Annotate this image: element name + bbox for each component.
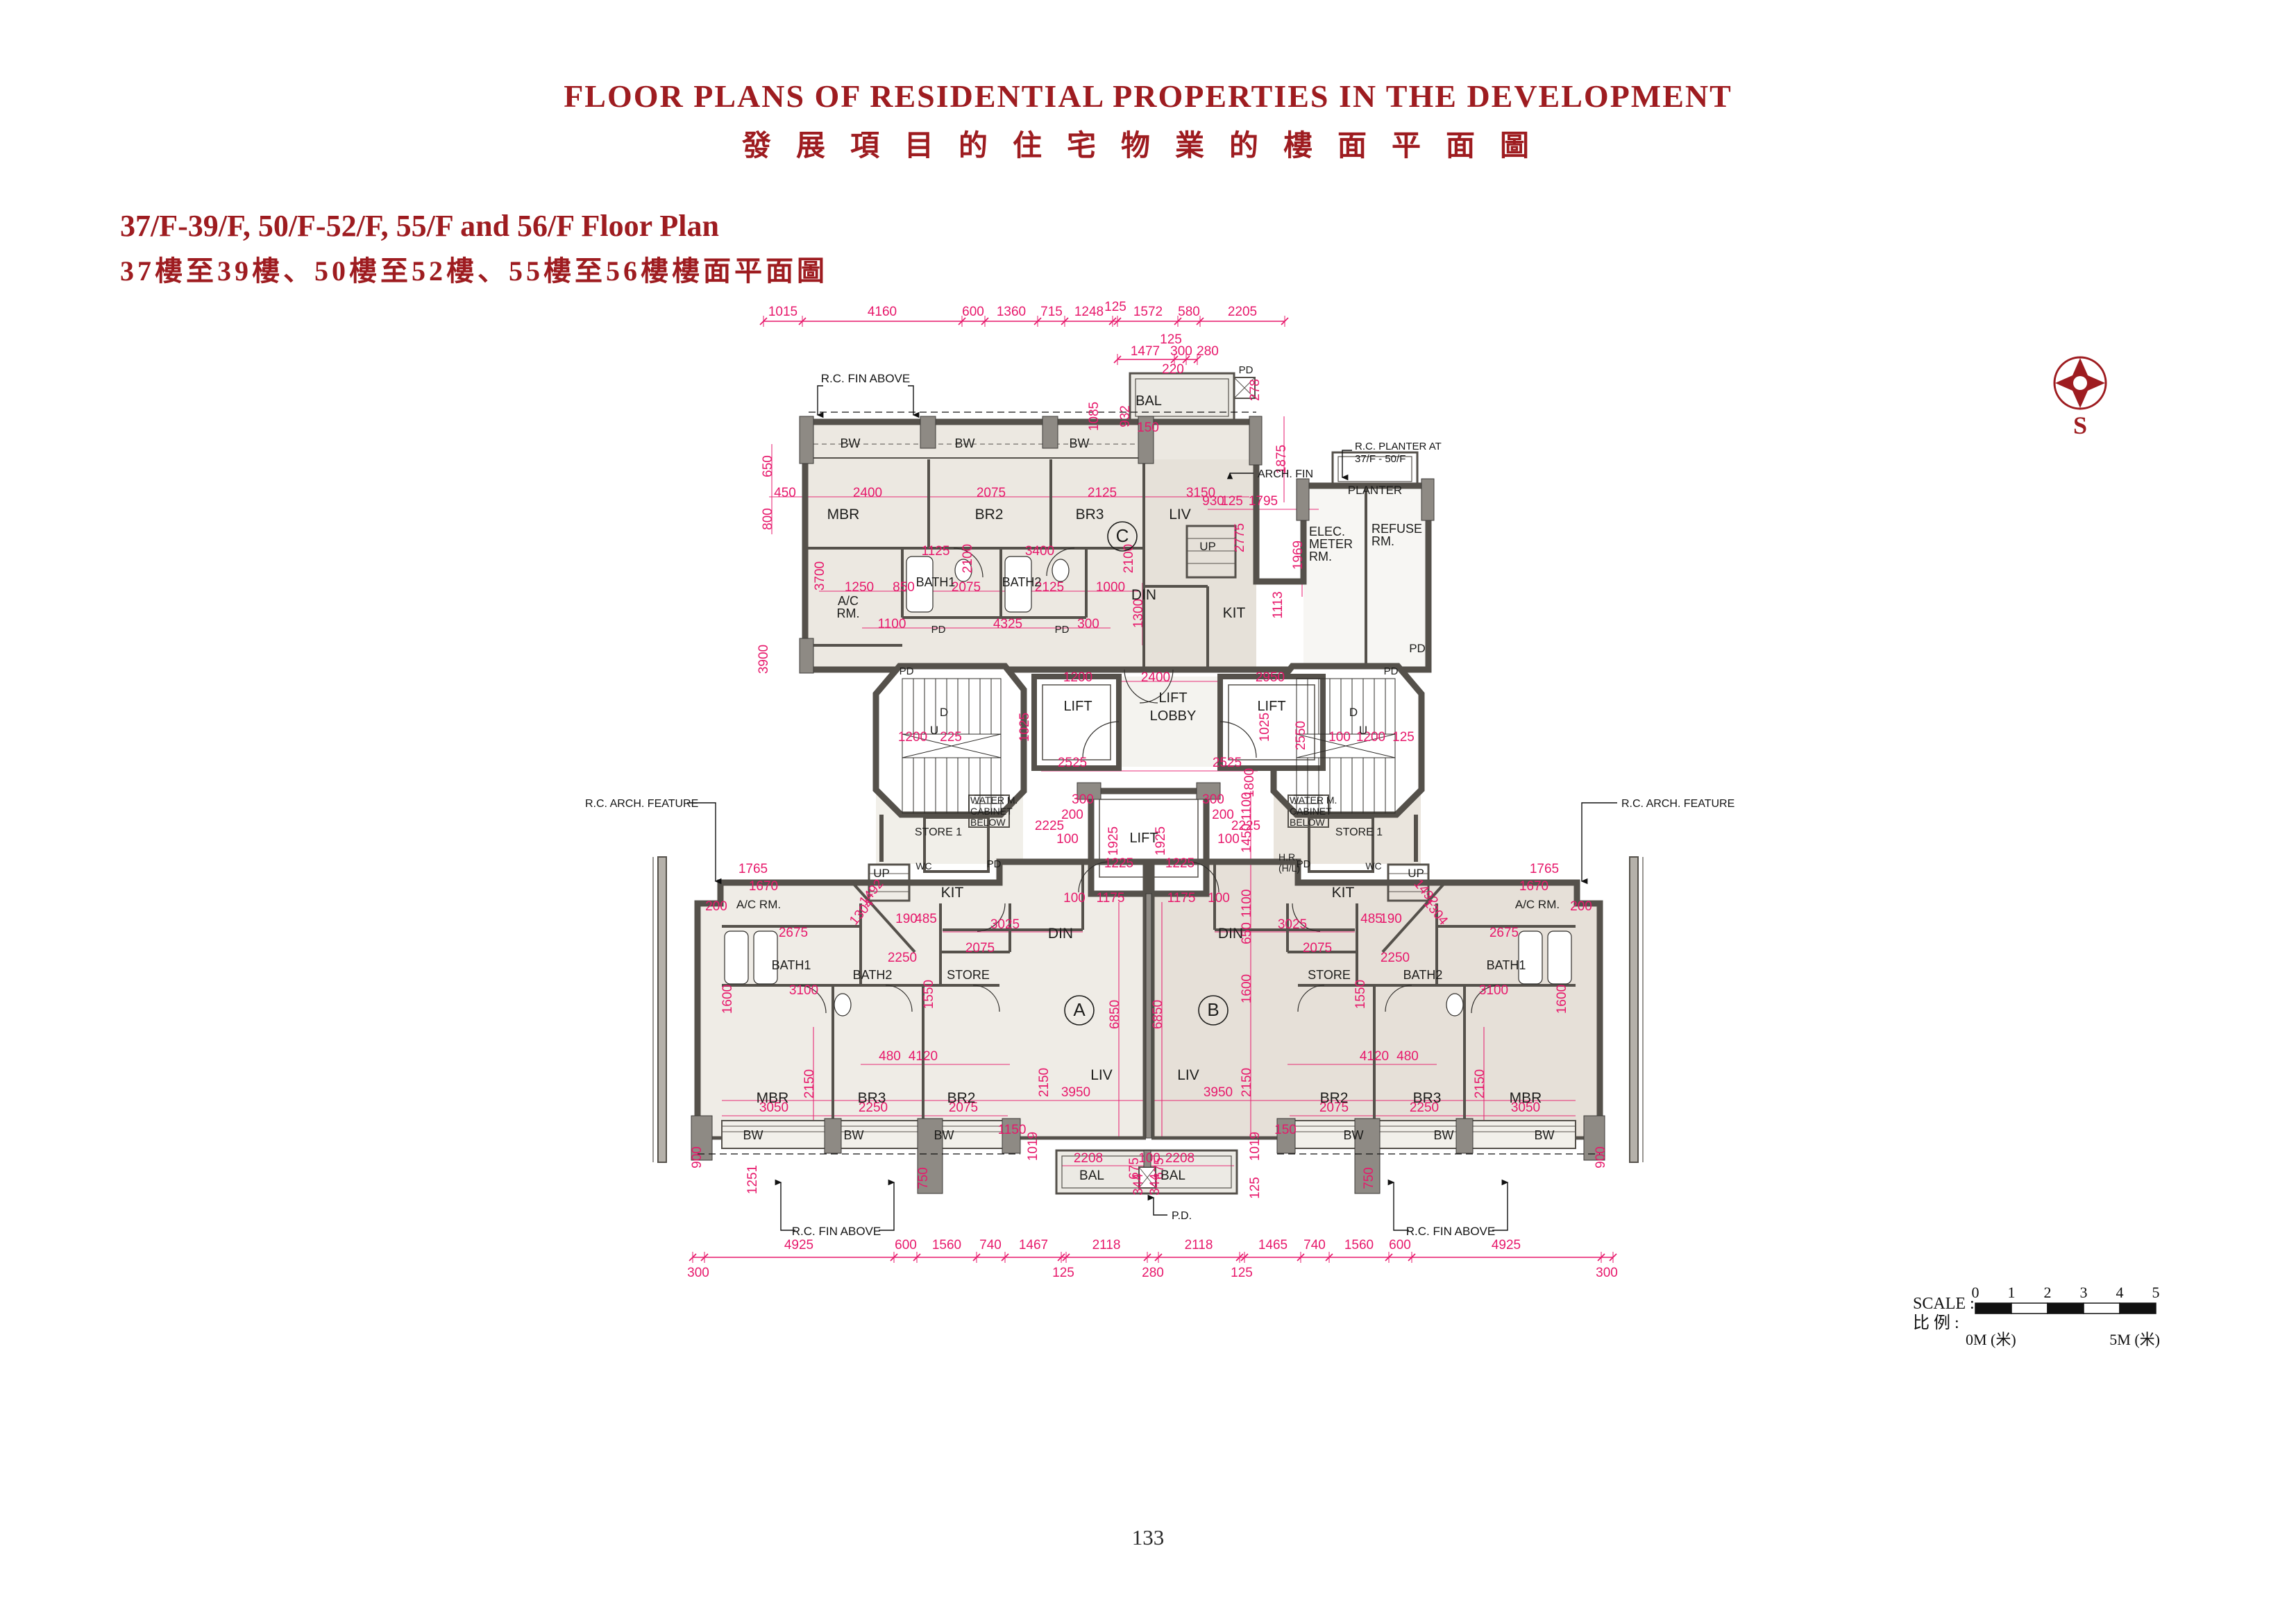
room-label-br2: BR2 [947, 1090, 976, 1106]
dim-label: 3025 [1278, 917, 1307, 932]
scale-tick-label: 5 [2152, 1284, 2160, 1301]
dim-label: 750 [1362, 1167, 1376, 1189]
room-label-kit: KIT [941, 885, 964, 901]
dim-label: 1560 [1344, 1238, 1374, 1252]
room-label-planter: PLANTER [1348, 484, 1402, 497]
room-label-u: U [1359, 724, 1367, 737]
dim-label: 2150 [1473, 1069, 1487, 1098]
room-label-kit: KIT [1332, 885, 1355, 901]
room-label-lift: LIFT [1257, 699, 1285, 714]
room-label-mbr: MBR [827, 507, 860, 522]
dim-label: 650 [761, 455, 775, 477]
scale-label-en: SCALE : [1913, 1295, 1975, 1313]
room-label-bath1: BATH1 [772, 958, 811, 972]
dim-label: 125 [1052, 1266, 1074, 1280]
dim-label: 200 [1570, 899, 1592, 914]
room-label-br2: BR2 [975, 507, 1004, 522]
dim-label: 1085 [1087, 402, 1101, 431]
room-label-bw: BW [934, 1128, 954, 1142]
room-label-pd: PD [987, 858, 1002, 870]
dim-label: 2950 [1256, 670, 1285, 685]
dim-label: 2675 [779, 926, 808, 940]
dim-label: 1100 [878, 617, 906, 631]
dim-label: 740 [1303, 1238, 1326, 1252]
dim-label: 3900 [757, 645, 771, 674]
dim-label: 1100 [1240, 890, 1254, 918]
room-label-lift: LIFT [1063, 699, 1092, 714]
room-label-mbr: MBR [757, 1090, 789, 1106]
dim-label: 485 [915, 912, 937, 926]
page-number: 133 [0, 1525, 2296, 1550]
room-label-d: D [940, 706, 948, 719]
room-label-liv: LIV [1169, 507, 1191, 522]
dim-label: 300 [1596, 1266, 1618, 1280]
room-label-cabinet: CABINET [1290, 806, 1332, 817]
dim-label: 1765 [1530, 862, 1559, 876]
room-label-rm: RM. [1309, 550, 1332, 563]
dim-label: 1600 [1240, 974, 1254, 1003]
room-label-bath2: BATH2 [1002, 575, 1042, 589]
dim-label: 1467 [1019, 1238, 1048, 1252]
dim-label: 2150 [1037, 1068, 1052, 1097]
dim-label: 900 [690, 1146, 704, 1169]
dim-label: 4160 [868, 305, 897, 319]
dim-label: 1175 [1167, 891, 1196, 906]
room-label-a-c-rm: A/C RM. [736, 898, 781, 911]
dim-label: 850 [893, 580, 915, 595]
room-label-pd: PD [1055, 624, 1070, 636]
dim-label: 1000 [1096, 580, 1125, 595]
room-label-bw: BW [844, 1128, 864, 1142]
dim-label: 190 [895, 912, 918, 926]
room-label-up: UP [1199, 540, 1216, 553]
room-label-bal: BAL [1079, 1169, 1104, 1183]
dim-label: 1113 [1271, 591, 1285, 618]
dim-label: 4120 [1360, 1049, 1389, 1064]
room-label-bw: BW [1344, 1128, 1364, 1142]
dim-label: 3700 [813, 561, 827, 590]
dim-label: 1175 [1097, 891, 1125, 906]
scale-tick-label: 1 [2008, 1284, 2016, 1301]
dim-label: 300 [1170, 344, 1192, 359]
dim-label: 1225 [1104, 856, 1133, 871]
annotation-r-c-fin-above: R.C. FIN ABOVE [821, 372, 910, 385]
dim-label: 4325 [993, 617, 1022, 631]
dim-label: 220 [1162, 362, 1184, 377]
room-label-br3: BR3 [1413, 1090, 1442, 1106]
annotation-r-c-fin-above: R.C. FIN ABOVE [1406, 1225, 1495, 1238]
room-label-bal: BAL [1160, 1169, 1185, 1183]
dim-label: 4120 [909, 1049, 938, 1064]
room-label-pd: PD [1297, 858, 1311, 870]
compass-south-label: S [2073, 411, 2087, 439]
room-label-bw: BW [1070, 436, 1090, 450]
room-label-pd: PD [900, 665, 914, 677]
dim-label: 2150 [1240, 1068, 1254, 1097]
dim-label: 300 [1077, 617, 1099, 631]
scale-label-cn: 比 例 : [1913, 1314, 1959, 1332]
dim-label: 1969 [1291, 541, 1306, 570]
dim-label: 2775 [1233, 523, 1247, 552]
dim-label: 600 [895, 1238, 917, 1252]
dim-label: 600 [1389, 1238, 1411, 1252]
scale-right-label: 5M (米) [2109, 1331, 2160, 1348]
room-label-rm: RM. [837, 606, 860, 620]
room-label-store-1: STORE 1 [915, 826, 962, 838]
room-label-d: D [1349, 706, 1358, 719]
annotation-p-d: P.D. [1172, 1210, 1192, 1222]
dim-label: 1200 [1063, 670, 1092, 685]
dim-label: 300 [1072, 792, 1094, 807]
dim-label: 100 [1056, 832, 1079, 847]
dim-label: 3100 [789, 983, 818, 998]
room-label-lobby: LOBBY [1150, 708, 1197, 724]
scale-bar-segment [1975, 1303, 2011, 1314]
room-label-cabinet: CABINET [970, 806, 1013, 817]
room-label-refuse: REFUSE [1371, 522, 1422, 536]
scale-tick-label: 3 [2080, 1284, 2088, 1301]
room-label-store: STORE [1308, 968, 1351, 982]
dim-label: 1477 [1131, 344, 1160, 359]
dim-label: 1670 [1519, 879, 1548, 894]
dim-label: 2150 [802, 1069, 817, 1098]
dim-label: 2225 [1035, 819, 1064, 833]
dim-label: 2550 [1294, 721, 1308, 750]
dim-label: 800 [761, 508, 775, 530]
room-label-bath2: BATH2 [1403, 968, 1443, 982]
dim-label: 1560 [932, 1238, 961, 1252]
dim-label: 6850 [1151, 1000, 1165, 1029]
dim-label: 2250 [1381, 951, 1410, 965]
dim-label: 2100 [961, 544, 975, 573]
dim-label: 1248 [1074, 305, 1104, 319]
dim-label: 4925 [1492, 1238, 1521, 1252]
room-label-pd: PD [1239, 364, 1253, 376]
dim-label: 190 [1380, 912, 1402, 926]
dim-label: 3400 [1025, 544, 1054, 559]
dim-label: 1572 [1133, 305, 1163, 319]
dim-label: 280 [1142, 1266, 1164, 1280]
dim-label: 1550 [922, 980, 936, 1009]
dim-label: 100 [1328, 730, 1351, 745]
dim-label: 1025 [1018, 713, 1032, 742]
dim-label: 750 [916, 1167, 931, 1189]
room-label-liv: LIV [1090, 1067, 1113, 1083]
dim-label: 1550 [1353, 980, 1368, 1009]
dim-label: 1670 [749, 879, 778, 894]
room-label-bath1: BATH1 [916, 575, 956, 589]
dim-label: 2075 [952, 580, 981, 595]
dim-label: 2100 [1122, 544, 1136, 573]
room-label-wc: WC [915, 860, 931, 872]
dim-label: 4925 [784, 1238, 813, 1252]
dim-label: 932 [1118, 405, 1133, 427]
dim-label: 1019 [1026, 1132, 1040, 1161]
dim-label: 1765 [738, 862, 768, 876]
annotation-arch-fin: ARCH. FIN [1258, 468, 1313, 480]
dim-label: 300 [687, 1266, 709, 1280]
annotation-r-c-fin-above: R.C. FIN ABOVE [792, 1225, 881, 1238]
dim-label: 485 [1360, 912, 1383, 926]
dim-label: 100 [1217, 832, 1240, 847]
room-label-br3: BR3 [1076, 507, 1104, 522]
dim-label: 100 [1063, 891, 1086, 906]
dim-label: 1925 [1106, 826, 1121, 856]
room-label-meter: METER [1309, 537, 1353, 551]
dim-label: 2118 [1092, 1238, 1121, 1252]
unit-label-c: C [1116, 525, 1129, 546]
scale-tick-label: 4 [2116, 1284, 2124, 1301]
annotation-r-c-planter-at: R.C. PLANTER AT [1355, 441, 1442, 452]
dim-label: 2205 [1228, 305, 1257, 319]
room-label-store: STORE [947, 968, 990, 982]
room-label-water-m: WATER M. [1290, 794, 1337, 806]
dim-label: 480 [879, 1049, 901, 1064]
dim-label: 1600 [720, 985, 735, 1014]
annotation-37-f-50-f: 37/F - 50/F [1355, 453, 1406, 465]
dim-label: 1100 [1240, 792, 1254, 821]
dim-label: 740 [979, 1238, 1002, 1252]
dim-label: 580 [1178, 305, 1200, 319]
dim-label: 1125 [922, 544, 950, 559]
dim-label: 2250 [888, 951, 917, 965]
dim-label: 1360 [997, 305, 1026, 319]
dim-label: 1795 [1249, 494, 1278, 509]
dim-label: 1200 [898, 730, 927, 745]
room-label-up: UP [1408, 867, 1424, 880]
dim-label: 715 [1040, 305, 1063, 319]
dim-label: 1450 [1240, 824, 1254, 853]
scale-bar-segment [2011, 1303, 2048, 1314]
room-label-wc: WC [1365, 860, 1381, 872]
room-label-bw: BW [841, 436, 861, 450]
unit-label-b: B [1207, 999, 1219, 1020]
room-label-bw: BW [743, 1128, 763, 1142]
brochure-page: FLOOR PLANS OF RESIDENTIAL PROPERTIES IN… [0, 0, 2296, 1623]
dim-label: 280 [1197, 344, 1219, 359]
scale-bar-segment [2120, 1303, 2156, 1314]
dim-label: 125 [1221, 494, 1243, 509]
dim-label: 225 [940, 730, 962, 745]
scale-bar-segment [2048, 1303, 2084, 1314]
room-label-h-r: H.R. [1278, 851, 1298, 863]
room-label-a-c: A/C [838, 594, 859, 608]
dim-label: 125 [1248, 1177, 1263, 1199]
dim-label: 1300 [1131, 599, 1146, 628]
dim-label: 6850 [1108, 1000, 1122, 1029]
dim-label: 450 [774, 486, 796, 500]
dim-label: 3025 [990, 917, 1020, 932]
dim-label: 2208 [1074, 1151, 1103, 1166]
dim-label: 2075 [977, 486, 1006, 500]
room-label-din: DIN [1048, 926, 1073, 942]
dim-label: 1600 [1555, 985, 1569, 1014]
compass: S [2054, 357, 2106, 439]
room-label-liv: LIV [1177, 1067, 1199, 1083]
room-label-store-1: STORE 1 [1335, 826, 1383, 838]
unit-label-a: A [1073, 999, 1086, 1020]
scale-bar-segment [2084, 1303, 2120, 1314]
dim-label: 600 [962, 305, 984, 319]
room-label-pd: PD [1409, 642, 1426, 655]
room-label-kit: KIT [1223, 605, 1246, 621]
dim-label: 125 [1231, 1266, 1253, 1280]
room-label-below: BELOW [1290, 817, 1325, 828]
dim-label: 2125 [1088, 486, 1117, 500]
dim-label: 200 [705, 899, 727, 914]
dim-label: 2400 [1141, 670, 1170, 685]
dim-label: 3950 [1204, 1085, 1233, 1100]
room-label-din: DIN [1218, 926, 1243, 942]
dim-label: 344 [1131, 1173, 1146, 1196]
floor-plan-drawing: 1015416060013607151248125157258022051251… [0, 0, 2296, 1623]
room-label-bw: BW [955, 436, 975, 450]
dim-label: 1015 [768, 305, 797, 319]
dim-label: 900 [1594, 1146, 1608, 1169]
dim-label: 278 [1248, 379, 1263, 401]
scale-tick-label: 0 [1972, 1284, 1980, 1301]
room-label-pd: PD [1384, 665, 1399, 677]
dim-label: 100 [1208, 891, 1230, 906]
dim-label: 1150 [998, 1123, 1027, 1137]
dim-label: 150 [1137, 420, 1159, 435]
dim-label: 2675 [1489, 926, 1519, 940]
room-label-din: DIN [1131, 587, 1156, 603]
room-label-below: BELOW [970, 817, 1006, 828]
dim-label: 150 [1274, 1123, 1297, 1137]
room-label-elec: ELEC. [1309, 525, 1345, 538]
scale-tick-label: 2 [2044, 1284, 2052, 1301]
annotation-r-c-arch-feature: R.C. ARCH. FEATURE [1621, 798, 1734, 810]
room-label-rm: RM. [1371, 534, 1394, 548]
room-label-br3: BR3 [858, 1090, 886, 1106]
dim-label: 2208 [1165, 1151, 1195, 1166]
room-label-bw: BW [1535, 1128, 1555, 1142]
dim-label: 3100 [1479, 983, 1508, 998]
dim-label: 1019 [1248, 1132, 1263, 1161]
room-label-lift: LIFT [1129, 831, 1158, 846]
dim-label: 1465 [1258, 1238, 1288, 1252]
dim-label: 2075 [1303, 941, 1332, 955]
room-label-bath2: BATH2 [853, 968, 893, 982]
room-label-bath1: BATH1 [1487, 958, 1526, 972]
room-label-mbr: MBR [1510, 1090, 1542, 1106]
dim-label: 200 [1061, 808, 1083, 822]
dim-label: 1225 [1165, 856, 1195, 871]
room-label-br2: BR2 [1320, 1090, 1349, 1106]
room-label-up: UP [873, 867, 890, 880]
dim-label: 2525 [1058, 756, 1087, 770]
dim-label: 1025 [1258, 713, 1272, 742]
dim-label: 125 [1392, 730, 1415, 745]
room-label-bw: BW [1434, 1128, 1454, 1142]
room-label-a-c-rm: A/C RM. [1515, 898, 1560, 911]
room-label-bal: BAL [1136, 393, 1162, 409]
room-label-pd: PD [931, 624, 946, 636]
scale-bar: SCALE : 比 例 : 012345 0M (米) 5M (米) [1913, 1284, 2160, 1348]
dim-label: 300 [1202, 792, 1224, 807]
scale-left-label: 0M (米) [1966, 1331, 2016, 1348]
dim-label: 2118 [1185, 1238, 1213, 1252]
room-label-u: U [930, 724, 938, 737]
dim-label: 480 [1396, 1049, 1419, 1064]
dim-label: 2075 [965, 941, 995, 955]
room-label-water-m: WATER M. [970, 794, 1018, 806]
dim-label: 125 [1104, 300, 1126, 314]
annotation-r-c-arch-feature: R.C. ARCH. FEATURE [585, 798, 698, 810]
dim-label: 2525 [1213, 756, 1242, 770]
dim-label: 1251 [745, 1165, 760, 1194]
dim-label: 3950 [1061, 1085, 1090, 1100]
dim-label: 1250 [845, 580, 874, 595]
dim-label: 2400 [853, 486, 882, 500]
room-label-lift: LIFT [1158, 690, 1187, 706]
